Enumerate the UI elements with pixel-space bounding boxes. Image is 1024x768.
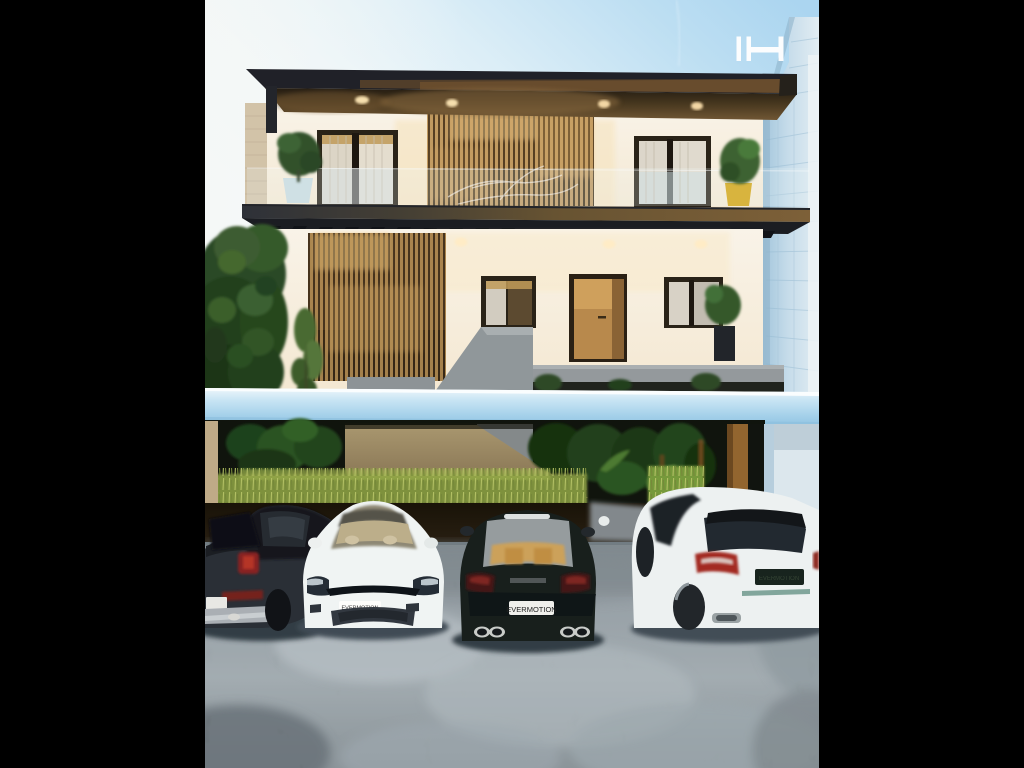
svg-text:EVERMOTION: EVERMOTION [759, 576, 799, 582]
svg-text:EVERMOTION: EVERMOTION [506, 605, 556, 614]
